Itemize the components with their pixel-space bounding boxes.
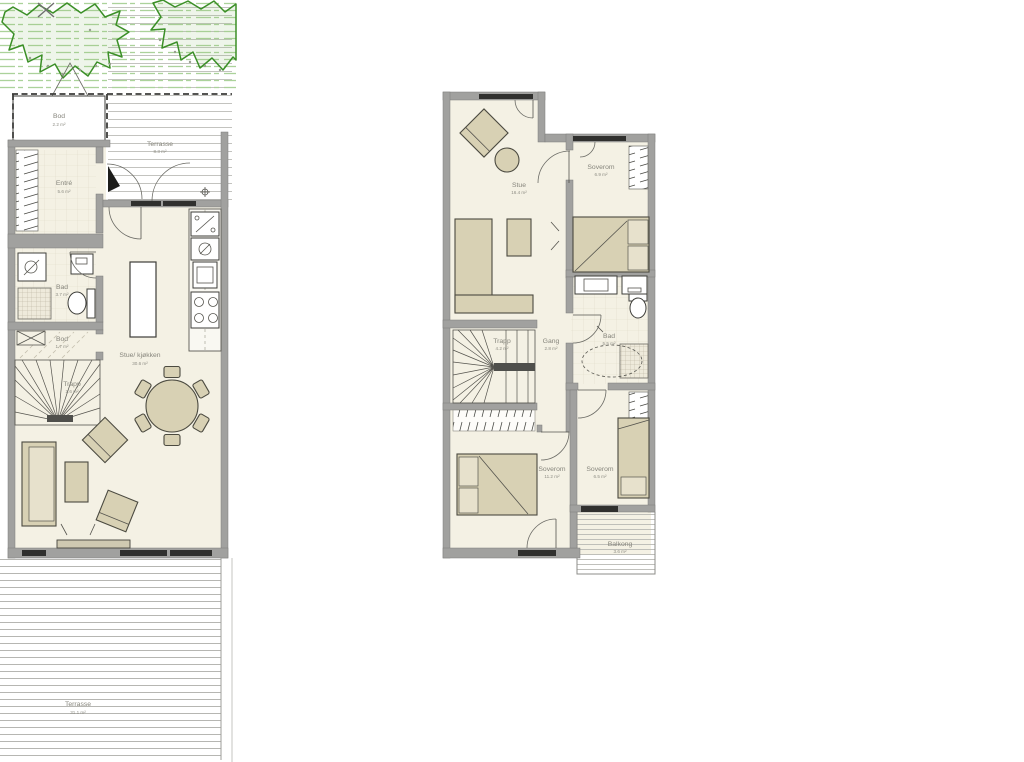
window-sill xyxy=(479,94,533,99)
room-area: 3.7 m² xyxy=(55,292,68,297)
stair-rail xyxy=(47,415,73,422)
room-area: 6.5 m² xyxy=(593,474,606,479)
shower-icon xyxy=(18,288,51,319)
room-label: Balkong xyxy=(608,541,633,548)
room-area: 4.2 m² xyxy=(495,346,508,351)
pillow xyxy=(459,457,478,486)
pillow xyxy=(459,488,478,513)
floorplan-drawing: Bod 2.2 m² Terrasse 8.3 m² Entré 5.6 m² … xyxy=(0,0,1024,762)
toilet-icon xyxy=(87,289,95,318)
dining-table xyxy=(146,380,198,432)
room-area: 31.1 m² xyxy=(70,710,86,715)
room-label: Terrasse xyxy=(65,701,91,708)
room-area: 11.2 m² xyxy=(544,474,560,479)
terrace-bottom xyxy=(0,558,232,762)
room-label: Bod xyxy=(53,113,65,120)
tv-bench xyxy=(57,540,130,548)
pillow xyxy=(628,246,648,270)
floorplan-sheet: Bod 2.2 m² Terrasse 8.3 m² Entré 5.6 m² … xyxy=(0,0,1024,762)
room-label: Terrasse xyxy=(147,141,173,148)
room-area: 8.3 m² xyxy=(153,149,166,154)
room-label: Bad xyxy=(603,333,615,340)
room-area: 1.7 m² xyxy=(55,344,68,349)
room-entre xyxy=(16,150,38,231)
pillow xyxy=(628,220,648,244)
washing-machine-icon xyxy=(622,276,647,294)
coffee-table xyxy=(65,462,88,502)
room-label: Bad xyxy=(56,284,68,291)
kitchen-island xyxy=(130,262,156,337)
room-label: Soverom xyxy=(587,164,615,171)
room-area: 16.4 m² xyxy=(511,190,527,195)
room-label: Soverom xyxy=(586,466,614,473)
room-area: 2.6 m² xyxy=(65,389,78,394)
balcony-door-sill xyxy=(581,506,618,512)
side-table-round xyxy=(495,148,519,172)
room-label: Entré xyxy=(56,180,72,187)
side-table xyxy=(507,219,531,256)
vegetation xyxy=(0,0,236,92)
room-area: 2.8 m² xyxy=(544,346,557,351)
room-area: 2.2 m² xyxy=(52,122,65,127)
window-sill xyxy=(22,550,46,556)
room-area: 3.6 m² xyxy=(613,549,626,554)
stair-rail xyxy=(494,363,535,371)
terrace-door-sill xyxy=(131,201,161,206)
room-label: Soverom xyxy=(538,466,566,473)
first-floor-plan: Bod 2.2 m² Terrasse 8.3 m² Entré 5.6 m² … xyxy=(0,0,236,762)
shower-icon xyxy=(620,344,648,378)
room-area: 5.6 m² xyxy=(57,189,70,194)
room-label: Stue/ kjøkken xyxy=(119,352,160,359)
room-label: Bod xyxy=(56,336,68,343)
second-floor-plan: Stue 16.4 m² Soverom 6.9 m² Trapp 4.2 m²… xyxy=(443,92,655,574)
room-label: Trapp xyxy=(63,381,81,388)
room-label: Trapp xyxy=(493,338,511,345)
cooktop-icon xyxy=(191,292,219,328)
room-label: Stue xyxy=(512,182,526,189)
room-label: Gang xyxy=(543,338,560,345)
pillow xyxy=(621,477,646,495)
room-area: 6.9 m² xyxy=(594,172,607,177)
room-area: 5.5 m² xyxy=(602,341,615,346)
room-area: 30.6 m² xyxy=(132,361,148,366)
